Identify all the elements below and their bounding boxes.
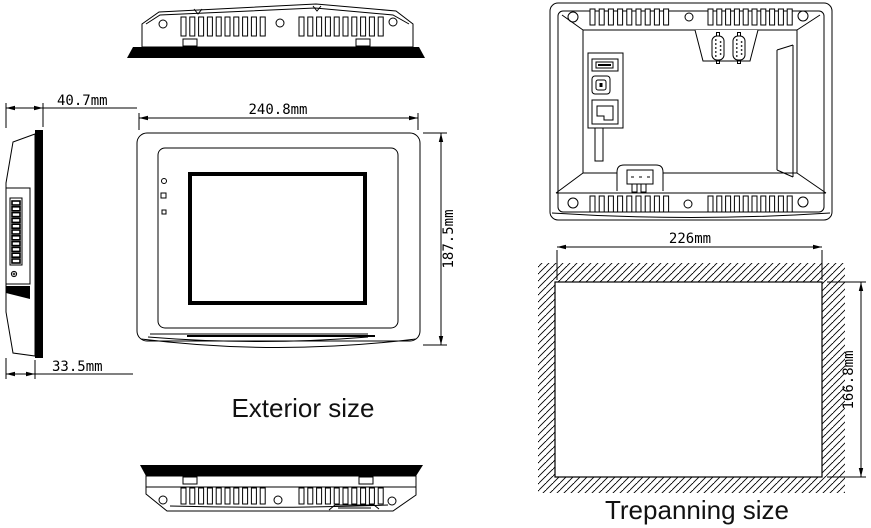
dim-label-side-depth-total: 40.7mm	[57, 93, 108, 109]
bottom-view	[140, 465, 423, 511]
cutout-rect	[555, 282, 822, 477]
screw-hole-icon	[684, 200, 692, 208]
dim-label-front-height: 187.5mm	[441, 209, 457, 268]
screw-hole-icon	[276, 19, 284, 27]
dim-front-width: 240.8mm	[139, 102, 418, 130]
vent-slots	[590, 196, 669, 212]
dim-label-cutout-width: 226mm	[669, 231, 711, 247]
dim-side-depth-total: 40.7mm	[6, 93, 137, 128]
dim-label-cutout-height: 166.8mm	[841, 350, 857, 409]
mount-slot	[359, 477, 373, 484]
screw-hole-icon	[274, 496, 282, 504]
serial-port-recess	[695, 30, 758, 64]
dim-label-side-depth-body: 33.5mm	[52, 359, 103, 375]
screw-hole-icon	[568, 198, 578, 208]
touchscreen	[192, 176, 363, 301]
trepanning-size-caption: Trepanning size	[605, 495, 789, 525]
back-view	[550, 3, 832, 220]
dim-side-depth-body: 33.5mm	[6, 358, 133, 379]
dim-front-height: 187.5mm	[423, 133, 457, 345]
mount-slot	[183, 39, 197, 46]
mount-slot	[356, 39, 370, 46]
screw-hole-icon	[159, 496, 167, 504]
power-terminal-icon	[617, 165, 663, 192]
screw-hole-icon	[388, 497, 396, 505]
screw-hole-icon	[798, 11, 808, 21]
screw-hole-icon	[798, 197, 808, 207]
top-view	[127, 4, 425, 58]
side-view: 40.7mm 33.5mm	[6, 93, 137, 379]
side-bezel-strip	[35, 130, 43, 358]
front-bezel-edge	[127, 47, 425, 58]
io-port-panel	[588, 53, 623, 128]
screw-hole-icon	[159, 20, 167, 28]
screw-hole-icon	[389, 18, 397, 26]
front-bezel-edge	[140, 465, 423, 476]
trepanning-view: 226mm 166.8mm Trepanning size	[538, 231, 866, 525]
panel-dimension-drawing: 40.7mm 33.5mm 240.8mm	[0, 0, 871, 528]
front-view: 240.8mm 187.5mm Exterior size	[137, 102, 457, 423]
screw-hole-icon	[685, 13, 693, 21]
mount-slot	[183, 477, 197, 484]
exterior-size-caption: Exterior size	[231, 393, 374, 423]
dim-label-front-width: 240.8mm	[248, 102, 307, 118]
vent-slots	[590, 9, 669, 25]
